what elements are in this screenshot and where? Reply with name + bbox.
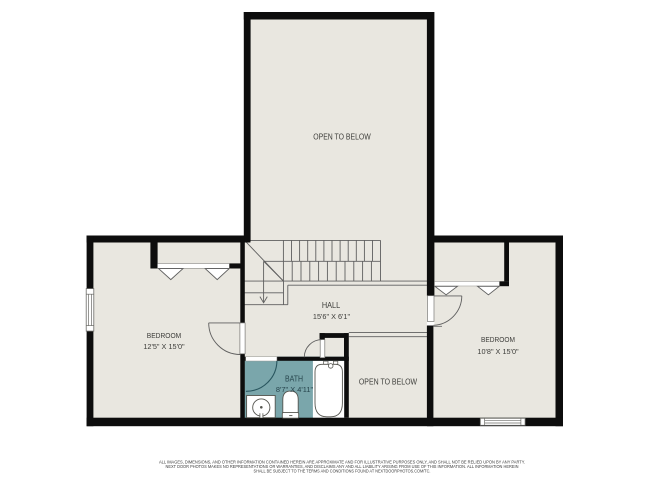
svg-text:BATH: BATH (285, 375, 303, 384)
svg-text:SHALL BE SUBJECT TO THE TERMS: SHALL BE SUBJECT TO THE TERMS AND CONDIT… (254, 468, 431, 473)
svg-text:10'8" X 15'0": 10'8" X 15'0" (477, 347, 518, 356)
svg-text:OPEN TO BELOW: OPEN TO BELOW (359, 378, 418, 387)
svg-text:HALL: HALL (322, 301, 341, 310)
svg-text:BEDROOM: BEDROOM (481, 335, 515, 344)
svg-text:12'5" X 15'0": 12'5" X 15'0" (143, 342, 185, 351)
svg-text:BEDROOM: BEDROOM (147, 331, 182, 340)
svg-text:OPEN TO BELOW: OPEN TO BELOW (313, 132, 371, 141)
svg-text:15'6" X 6'1": 15'6" X 6'1" (313, 312, 350, 321)
svg-text:8'7" X 4'11": 8'7" X 4'11" (276, 385, 314, 394)
